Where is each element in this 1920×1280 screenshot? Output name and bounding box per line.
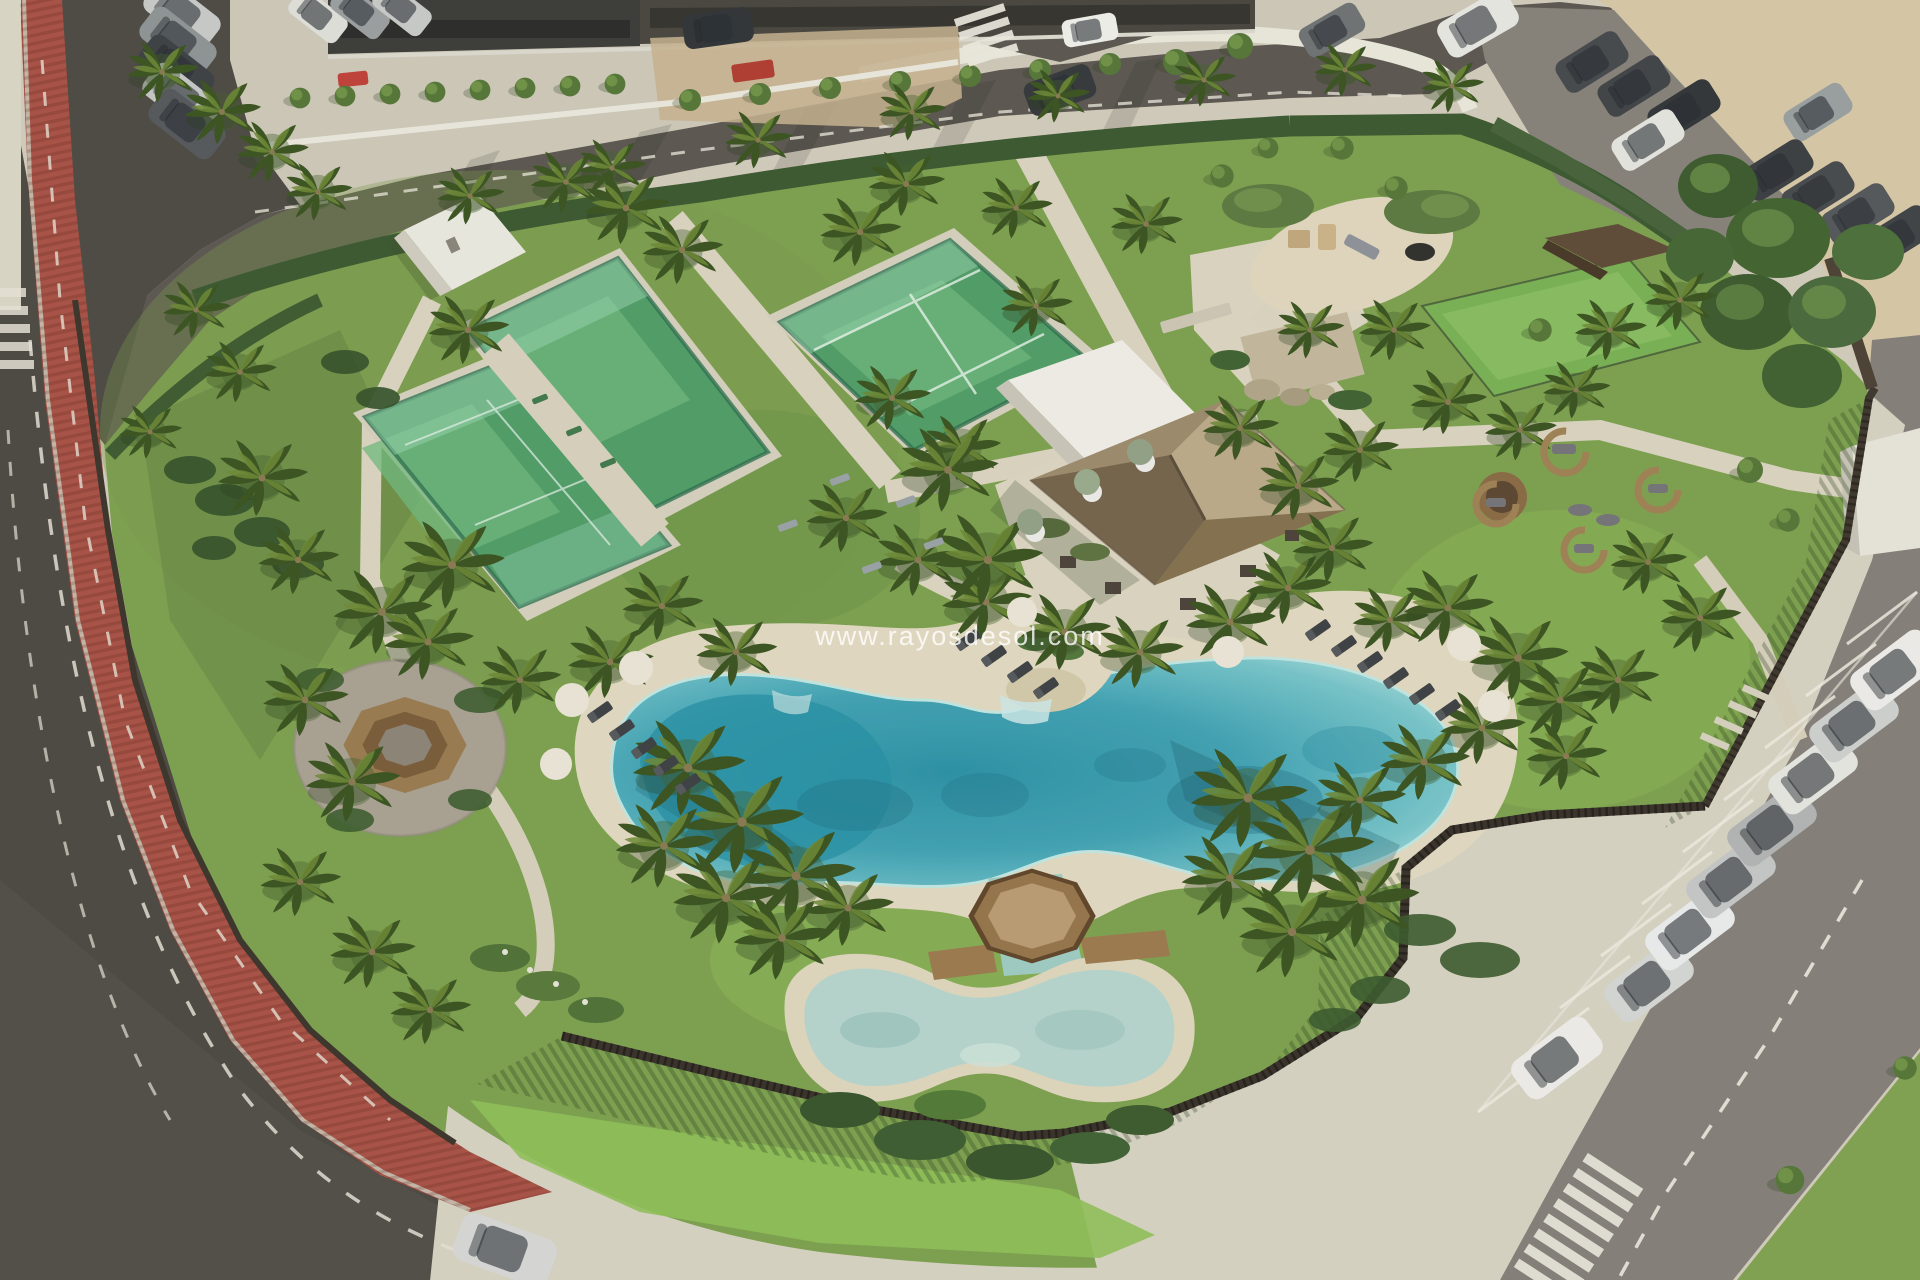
svg-text:www.rayosdesol.com: www.rayosdesol.com: [814, 621, 1105, 651]
